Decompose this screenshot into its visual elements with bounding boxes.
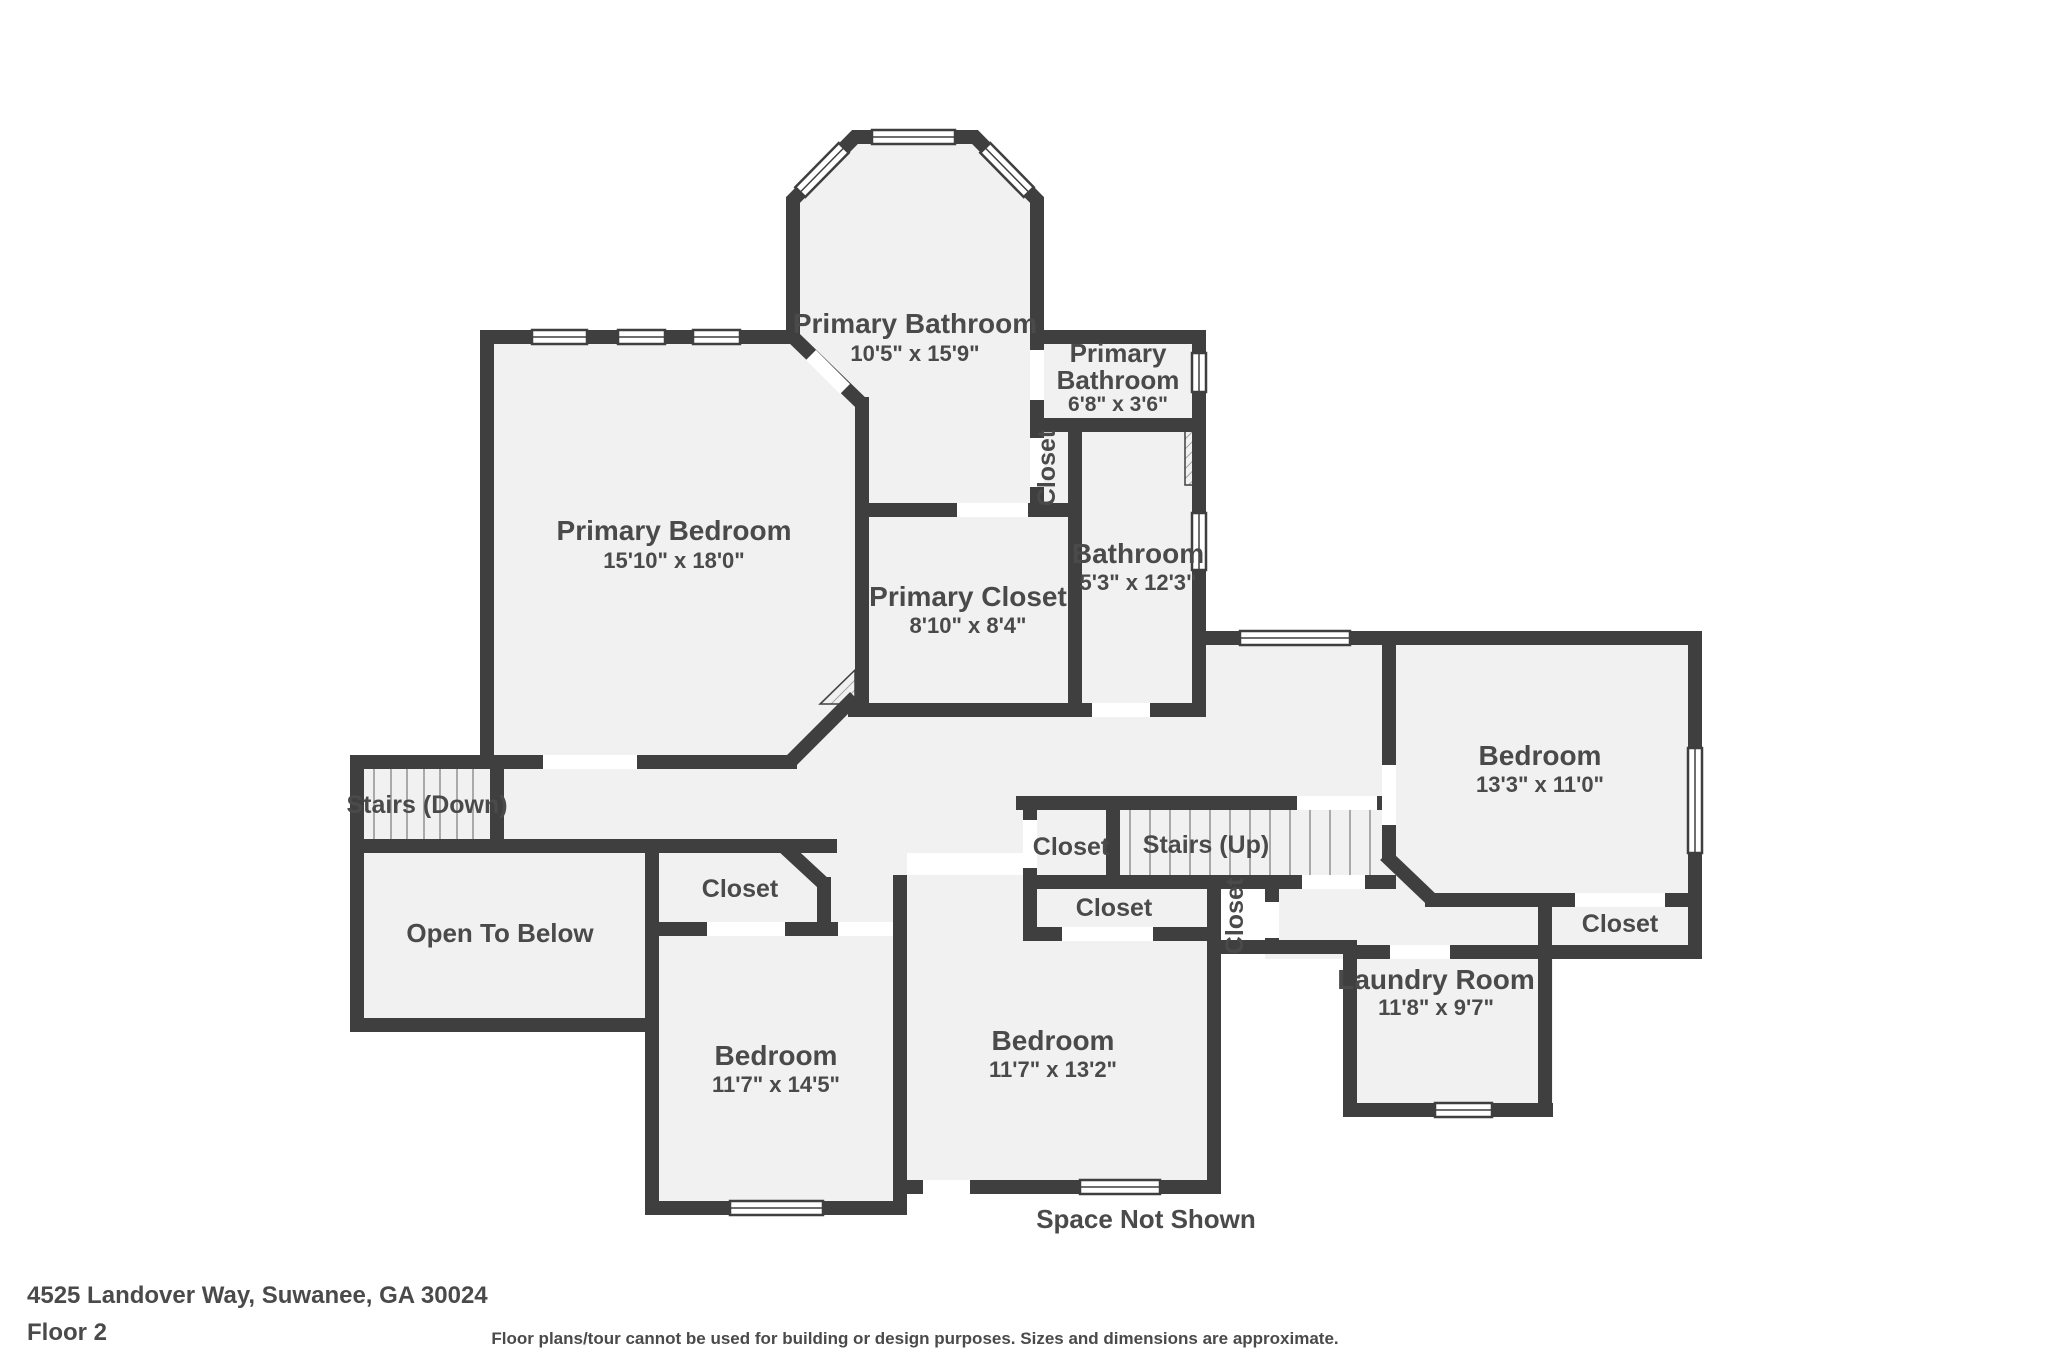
room-label-line2: Bathroom [1057,365,1180,395]
room-dims: 6'8" x 3'6" [1068,393,1168,416]
footer-disclaimer: Floor plans/tour cannot be used for buil… [491,1329,1338,1348]
room-dims: 8'10" x 8'4" [910,613,1027,638]
room-label: Bedroom [992,1025,1115,1056]
room-dims: 11'8" x 9'7" [1378,995,1494,1020]
room-closet-middle-vertical: Closet [1221,877,1249,954]
room-dims: 11'7" x 13'2" [989,1057,1117,1082]
room-primary-bathroom-small: Primary Bathroom 6'8" x 3'6" [1057,338,1180,416]
room-closet-stairs: Closet [1033,833,1110,861]
room-label: Primary Closet [869,581,1067,612]
room-label: Closet [702,875,779,903]
room-closet-hall: Closet [1033,429,1061,506]
room-label: Primary Bedroom [557,515,792,546]
room-label: Closet [1582,910,1659,938]
room-dims: 10'5" x 15'9" [850,341,979,366]
space-not-shown-label: Space Not Shown [1036,1204,1256,1234]
room-bathroom: Bathroom 5'3" x 12'3" [1072,538,1204,595]
room-stairs-up: Stairs (Up) [1143,831,1269,859]
room-label: Open To Below [406,918,594,948]
room-label: Stairs (Down) [346,791,507,819]
room-label: Closet [1221,877,1249,954]
room-label: Closet [1033,833,1110,861]
room-label: Bedroom [1479,740,1602,771]
room-label: Laundry Room [1337,964,1535,995]
room-bedroom-middle: Bedroom 11'7" x 13'2" [989,1025,1117,1082]
room-dims: 5'3" x 12'3" [1080,570,1197,595]
room-label: Primary Bathroom [793,308,1037,339]
footer: 4525 Landover Way, Suwanee, GA 30024 Flo… [27,1282,1339,1348]
room-label: Closet [1033,429,1061,506]
floor-plan-drawing: Primary Bathroom 10'5" x 15'9" Primary B… [0,0,2048,1365]
room-stairs-down: Stairs (Down) [346,791,507,819]
room-closet-bedroom-right: Closet [1582,910,1659,938]
room-dims: 15'10" x 18'0" [603,548,744,573]
footer-address: 4525 Landover Way, Suwanee, GA 30024 [27,1282,488,1309]
footer-floor: Floor 2 [27,1319,107,1346]
room-label: Bedroom [715,1040,838,1071]
room-label-line1: Primary [1070,338,1167,368]
room-closet-bedroom-left: Closet [702,875,779,903]
room-label: Stairs (Up) [1143,831,1269,859]
room-dims: 13'3" x 11'0" [1476,772,1604,797]
room-label: Bathroom [1072,538,1204,569]
room-closet-middle: Closet [1076,894,1153,922]
room-bedroom-right: Bedroom 13'3" x 11'0" [1476,740,1604,797]
room-bedroom-left: Bedroom 11'7" x 14'5" [712,1040,840,1097]
room-open-to-below: Open To Below [406,918,594,948]
room-dims: 11'7" x 14'5" [712,1072,840,1097]
room-label: Closet [1076,894,1153,922]
floor-plan-page: Primary Bathroom 10'5" x 15'9" Primary B… [0,0,2048,1365]
space-not-shown: Space Not Shown [1036,1204,1256,1234]
